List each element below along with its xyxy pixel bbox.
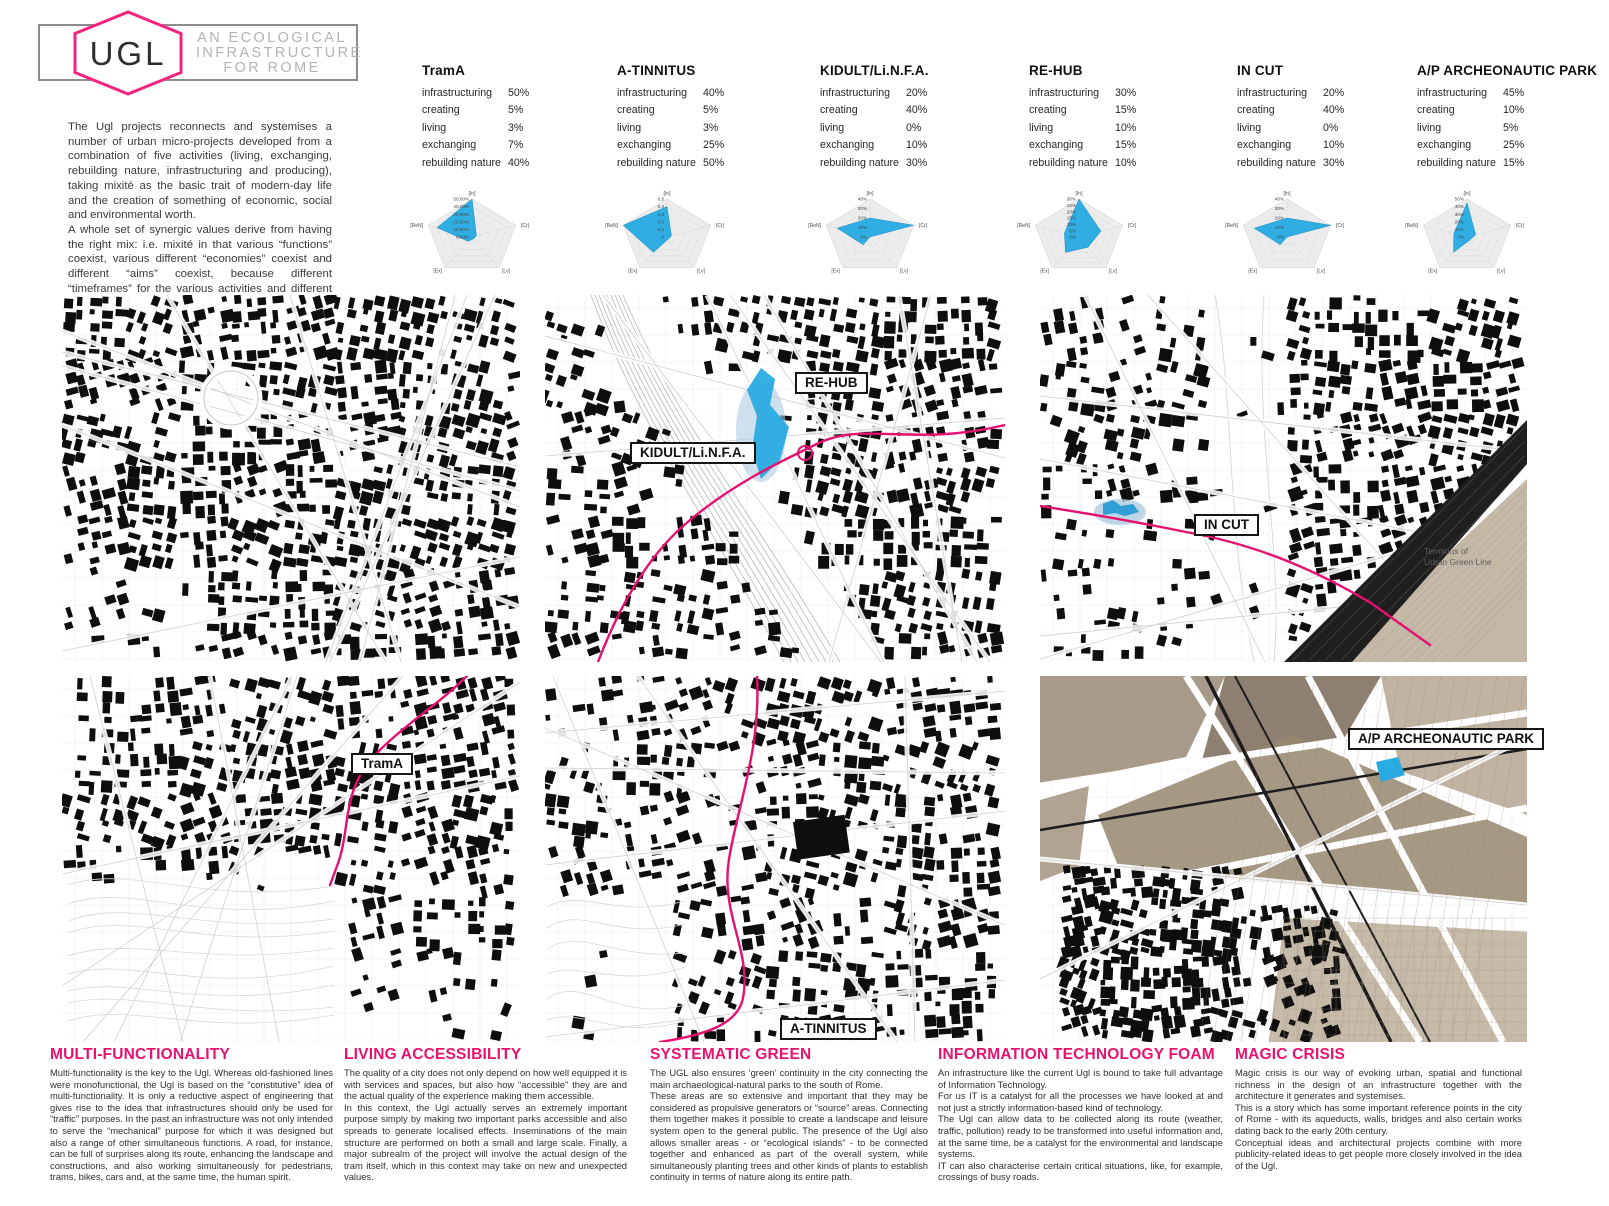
- svg-text:10%: 10%: [1067, 222, 1076, 227]
- svg-text:[ReN]: [ReN]: [1017, 223, 1030, 229]
- svg-text:[Lv]: [Lv]: [502, 269, 511, 275]
- svg-text:[In]: [In]: [664, 191, 672, 197]
- svg-text:0%: 0%: [860, 235, 867, 240]
- stat-value: 40%: [1323, 104, 1344, 121]
- stat-value: 3%: [508, 122, 523, 139]
- radar-chart-4: 30%25%20%15%10%5%0%[In][Cr][Lv][Ex][ReN]: [991, 187, 1167, 291]
- stat-label: rebuilding nature: [820, 157, 906, 174]
- svg-text:[ReN]: [ReN]: [1225, 223, 1238, 229]
- section-body: The quality of a city does not only depe…: [344, 1067, 627, 1183]
- stat-value: 30%: [1323, 157, 1344, 174]
- svg-text:0%: 0%: [1069, 235, 1076, 240]
- stat-value: 15%: [1115, 104, 1136, 121]
- section-title: MAGIC CRISIS: [1235, 1046, 1522, 1064]
- svg-text:50,00%: 50,00%: [453, 197, 469, 202]
- section-body: Magic crisis is our way of evoking urban…: [1235, 1067, 1522, 1171]
- svg-text:30%: 30%: [1275, 206, 1284, 211]
- svg-text:0: 0: [661, 235, 664, 240]
- stat-value: 7%: [508, 139, 523, 156]
- svg-text:20%: 20%: [1067, 209, 1076, 214]
- poster: UGL AN ECOLOGICAL INFRASTRUCTURE FOR ROM…: [0, 0, 1609, 1206]
- svg-text:0%: 0%: [1277, 235, 1284, 240]
- stat-row: exchanging25%: [617, 139, 793, 156]
- map-atinnitus: [545, 676, 1005, 1042]
- stat-value: 20%: [906, 87, 927, 104]
- section-title: INFORMATION TECHNOLOGY FOAM: [938, 1046, 1223, 1064]
- stat-value: 10%: [1503, 104, 1524, 121]
- stat-row: exchanging10%: [820, 139, 996, 156]
- svg-text:15%: 15%: [1067, 216, 1076, 221]
- svg-text:30%: 30%: [1067, 197, 1076, 202]
- svg-text:50%: 50%: [1455, 197, 1464, 202]
- stat-row: exchanging25%: [1417, 139, 1593, 156]
- svg-text:[Ex]: [Ex]: [1248, 269, 1257, 275]
- svg-text:0,2: 0,2: [658, 219, 665, 224]
- radar-chart-5: 40%30%20%10%0%[In][Cr][Lv][Ex][ReN]: [1199, 187, 1375, 291]
- stat-row: creating5%: [422, 104, 598, 121]
- stat-label: creating: [1029, 104, 1115, 121]
- stat-label: exchanging: [1237, 139, 1323, 156]
- stat-label: creating: [1417, 104, 1503, 121]
- svg-text:[Cr]: [Cr]: [919, 223, 928, 229]
- svg-text:40,00%: 40,00%: [453, 204, 469, 209]
- stat-value: 20%: [1323, 87, 1344, 104]
- logo-text: UGL: [90, 35, 167, 72]
- svg-text:[Lv]: [Lv]: [900, 269, 909, 275]
- stat-value: 50%: [703, 157, 724, 174]
- svg-text:30,00%: 30,00%: [453, 212, 469, 217]
- tagline-line: FOR ROME: [196, 61, 348, 76]
- stat-row: infrastructuring45%: [1417, 87, 1593, 104]
- stat-row: creating40%: [1237, 104, 1413, 121]
- svg-text:10%: 10%: [1275, 225, 1284, 230]
- stat-label: exchanging: [617, 139, 703, 156]
- svg-text:[Cr]: [Cr]: [1336, 223, 1345, 229]
- svg-text:40%: 40%: [1275, 197, 1284, 202]
- section-title: LIVING ACCESSIBILITY: [344, 1046, 627, 1064]
- stat-value: 30%: [906, 157, 927, 174]
- section-body: The UGL also ensures ‘green’ continuity …: [650, 1067, 928, 1183]
- svg-text:20%: 20%: [858, 216, 867, 221]
- radar-chart-3: 40%30%20%10%0%[In][Cr][Lv][Ex][ReN]: [782, 187, 958, 291]
- stat-row: rebuilding nature40%: [422, 157, 598, 174]
- stat-label: rebuilding nature: [1029, 157, 1115, 174]
- project-column-4: RE-HUBinfrastructuring30%creating15%livi…: [1029, 63, 1205, 291]
- stat-row: infrastructuring50%: [422, 87, 598, 104]
- stat-row: exchanging7%: [422, 139, 598, 156]
- project-column-6: A/P ARCHEONAUTIC PARKinfrastructuring45%…: [1417, 63, 1593, 291]
- stat-value: 3%: [703, 122, 718, 139]
- stat-value: 10%: [1115, 157, 1136, 174]
- stat-label: rebuilding nature: [1417, 157, 1503, 174]
- svg-text:20%: 20%: [1275, 216, 1284, 221]
- svg-text:40%: 40%: [1455, 204, 1464, 209]
- stat-label: infrastructuring: [617, 87, 703, 104]
- section-body: An infrastructure like the current Ugl i…: [938, 1067, 1223, 1183]
- section-body: Multi-functionality is the key to the Ug…: [50, 1067, 333, 1183]
- stat-label: rebuilding nature: [422, 157, 508, 174]
- map-rome-centre: [62, 295, 520, 662]
- map-label-rehub: RE-HUB: [795, 372, 868, 394]
- radar-chart-1: 50,00%40,00%30,00%20,00%10,00%0,00%[In][…: [384, 187, 560, 291]
- stat-value: 5%: [703, 104, 718, 121]
- svg-text:[Lv]: [Lv]: [1109, 269, 1118, 275]
- section-it-foam: INFORMATION TECHNOLOGY FOAM An infrastru…: [938, 1046, 1223, 1183]
- stat-row: infrastructuring30%: [1029, 87, 1205, 104]
- stat-value: 50%: [508, 87, 529, 104]
- svg-text:10%: 10%: [1455, 227, 1464, 232]
- stat-label: rebuilding nature: [1237, 157, 1323, 174]
- stat-row: creating15%: [1029, 104, 1205, 121]
- stat-value: 45%: [1503, 87, 1524, 104]
- section-living-accessibility: LIVING ACCESSIBILITY The quality of a ci…: [344, 1046, 627, 1183]
- project-title: A/P ARCHEONAUTIC PARK: [1417, 63, 1593, 78]
- project-title: TramA: [422, 63, 598, 78]
- svg-text:[ReN]: [ReN]: [605, 223, 618, 229]
- project-title: A-TINNITUS: [617, 63, 793, 78]
- svg-text:20%: 20%: [1455, 219, 1464, 224]
- svg-text:[Ex]: [Ex]: [831, 269, 840, 275]
- svg-text:0,5: 0,5: [658, 197, 665, 202]
- stat-row: infrastructuring20%: [1237, 87, 1413, 104]
- tagline-line: AN ECOLOGICAL: [196, 31, 348, 46]
- map-label-atinnitus: A-TINNITUS: [780, 1018, 877, 1040]
- stat-value: 30%: [1115, 87, 1136, 104]
- svg-text:5%: 5%: [1069, 228, 1076, 233]
- svg-text:[Cr]: [Cr]: [1128, 223, 1137, 229]
- stat-value: 15%: [1503, 157, 1524, 174]
- stat-row: creating5%: [617, 104, 793, 121]
- svg-text:[In]: [In]: [867, 191, 875, 197]
- stat-value: 0%: [1323, 122, 1338, 139]
- svg-text:30%: 30%: [1455, 212, 1464, 217]
- svg-text:[ReN]: [ReN]: [808, 223, 821, 229]
- stat-label: infrastructuring: [1237, 87, 1323, 104]
- map-label-incut: IN CUT: [1194, 514, 1259, 536]
- stat-label: rebuilding nature: [617, 157, 703, 174]
- section-title: MULTI-FUNCTIONALITY: [50, 1046, 333, 1064]
- map-rehub-kidult: [545, 295, 1005, 662]
- svg-text:0,1: 0,1: [658, 227, 665, 232]
- svg-text:[Lv]: [Lv]: [1317, 269, 1326, 275]
- map-label-ap: A/P ARCHEONAUTIC PARK: [1348, 728, 1544, 750]
- stat-label: exchanging: [820, 139, 906, 156]
- svg-text:[ReN]: [ReN]: [1405, 223, 1418, 229]
- stat-label: infrastructuring: [1417, 87, 1503, 104]
- stat-label: living: [1029, 122, 1115, 139]
- stat-label: living: [820, 122, 906, 139]
- stat-label: living: [617, 122, 703, 139]
- svg-text:[Lv]: [Lv]: [1497, 269, 1506, 275]
- svg-text:[In]: [In]: [1076, 191, 1084, 197]
- map-incut: [1040, 295, 1527, 662]
- tagline: AN ECOLOGICAL INFRASTRUCTURE FOR ROME: [196, 31, 348, 77]
- stat-row: living3%: [617, 122, 793, 139]
- svg-text:25%: 25%: [1067, 203, 1076, 208]
- stat-value: 40%: [703, 87, 724, 104]
- stat-label: creating: [422, 104, 508, 121]
- svg-text:[In]: [In]: [1464, 191, 1472, 197]
- stat-label: exchanging: [1029, 139, 1115, 156]
- project-title: IN CUT: [1237, 63, 1413, 78]
- svg-text:10,00%: 10,00%: [453, 227, 469, 232]
- stat-label: creating: [820, 104, 906, 121]
- stat-label: creating: [1237, 104, 1323, 121]
- project-column-3: KIDULT/Li.N.F.A.infrastructuring20%creat…: [820, 63, 996, 291]
- stat-row: living3%: [422, 122, 598, 139]
- stat-row: rebuilding nature30%: [1237, 157, 1413, 174]
- svg-text:[Ex]: [Ex]: [1040, 269, 1049, 275]
- stat-row: living5%: [1417, 122, 1593, 139]
- svg-text:0,00%: 0,00%: [456, 235, 469, 240]
- stat-row: infrastructuring20%: [820, 87, 996, 104]
- stat-row: living0%: [820, 122, 996, 139]
- radar-chart-2: 0,50,40,30,20,10[In][Cr][Lv][Ex][ReN]: [579, 187, 755, 291]
- map-note-terminus: Terminus of Urban Green Line: [1424, 546, 1492, 568]
- svg-text:[Cr]: [Cr]: [716, 223, 725, 229]
- map-label-kidult: KIDULT/Li.N.F.A.: [630, 442, 756, 464]
- stat-row: rebuilding nature10%: [1029, 157, 1205, 174]
- stat-value: 15%: [1115, 139, 1136, 156]
- map-trama: [62, 676, 520, 1042]
- project-column-1: TramAinfrastructuring50%creating5%living…: [422, 63, 598, 291]
- stat-row: creating40%: [820, 104, 996, 121]
- svg-text:0,4: 0,4: [658, 204, 665, 209]
- section-multi-functionality: MULTI-FUNCTIONALITY Multi-functionality …: [50, 1046, 333, 1183]
- stat-row: living0%: [1237, 122, 1413, 139]
- stat-row: rebuilding nature50%: [617, 157, 793, 174]
- stat-value: 5%: [508, 104, 523, 121]
- project-column-2: A-TINNITUSinfrastructuring40%creating5%l…: [617, 63, 793, 291]
- svg-text:[Cr]: [Cr]: [521, 223, 530, 229]
- stat-row: living10%: [1029, 122, 1205, 139]
- svg-text:40%: 40%: [858, 197, 867, 202]
- stat-value: 40%: [906, 104, 927, 121]
- stat-value: 25%: [1503, 139, 1524, 156]
- section-title: SYSTEMATIC GREEN: [650, 1046, 928, 1064]
- svg-text:[Ex]: [Ex]: [433, 269, 442, 275]
- stat-row: infrastructuring40%: [617, 87, 793, 104]
- stat-label: creating: [617, 104, 703, 121]
- stat-label: infrastructuring: [820, 87, 906, 104]
- svg-text:10%: 10%: [858, 225, 867, 230]
- stat-label: exchanging: [1417, 139, 1503, 156]
- svg-text:30%: 30%: [858, 206, 867, 211]
- tagline-line: INFRASTRUCTURE: [196, 46, 348, 61]
- stat-label: infrastructuring: [422, 87, 508, 104]
- svg-text:[Ex]: [Ex]: [628, 269, 637, 275]
- stat-value: 10%: [1323, 139, 1344, 156]
- svg-text:[Cr]: [Cr]: [1516, 223, 1525, 229]
- svg-text:[Ex]: [Ex]: [1428, 269, 1437, 275]
- map-label-trama: TramA: [351, 753, 413, 775]
- svg-text:[In]: [In]: [1284, 191, 1292, 197]
- stat-value: 10%: [906, 139, 927, 156]
- radar-chart-6: 50%40%30%20%10%0%[In][Cr][Lv][Ex][ReN]: [1379, 187, 1555, 291]
- stat-label: infrastructuring: [1029, 87, 1115, 104]
- svg-text:0,3: 0,3: [658, 212, 665, 217]
- stat-value: 0%: [906, 122, 921, 139]
- stat-label: living: [1237, 122, 1323, 139]
- ugl-hexagon-logo: UGL: [72, 10, 184, 96]
- stat-row: rebuilding nature30%: [820, 157, 996, 174]
- svg-text:[Lv]: [Lv]: [697, 269, 706, 275]
- svg-text:0%: 0%: [1457, 235, 1464, 240]
- svg-text:20,00%: 20,00%: [453, 219, 469, 224]
- stat-label: living: [422, 122, 508, 139]
- stat-value: 5%: [1503, 122, 1518, 139]
- stat-label: exchanging: [422, 139, 508, 156]
- stat-row: exchanging10%: [1237, 139, 1413, 156]
- stat-value: 10%: [1115, 122, 1136, 139]
- stat-label: living: [1417, 122, 1503, 139]
- stat-value: 40%: [508, 157, 529, 174]
- stat-row: rebuilding nature15%: [1417, 157, 1593, 174]
- svg-text:[In]: [In]: [469, 191, 477, 197]
- stat-row: creating10%: [1417, 104, 1593, 121]
- stat-value: 25%: [703, 139, 724, 156]
- stat-row: exchanging15%: [1029, 139, 1205, 156]
- project-title: KIDULT/Li.N.F.A.: [820, 63, 996, 78]
- svg-text:[ReN]: [ReN]: [410, 223, 423, 229]
- section-systematic-green: SYSTEMATIC GREEN The UGL also ensures ‘g…: [650, 1046, 928, 1183]
- section-magic-crisis: MAGIC CRISIS Magic crisis is our way of …: [1235, 1046, 1522, 1171]
- project-title: RE-HUB: [1029, 63, 1205, 78]
